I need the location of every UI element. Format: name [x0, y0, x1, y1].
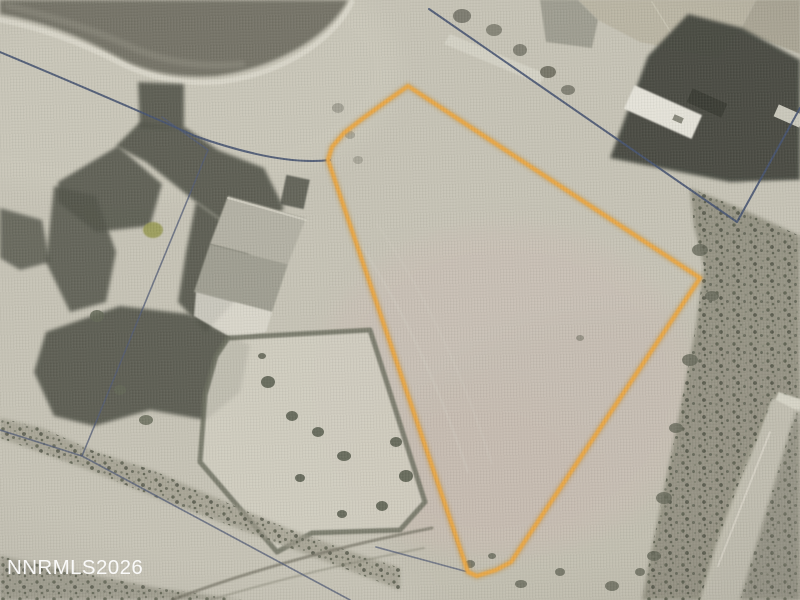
- house-shadow-edge-left: [0, 208, 50, 270]
- yard-bush: [390, 437, 402, 447]
- vehicle-blob: [561, 85, 575, 95]
- gravel-blob: [353, 156, 363, 164]
- scrub-blob: [682, 354, 698, 366]
- bottom-shrub: [605, 581, 619, 591]
- yard-bush: [312, 427, 324, 437]
- vehicle-blob: [513, 44, 527, 56]
- yard-bush: [295, 474, 305, 482]
- yard-bush: [399, 470, 413, 482]
- scrub-blob: [692, 244, 708, 256]
- vehicle-blob: [486, 24, 502, 36]
- aerial-parcel-map-photo: NNRMLS2026: [0, 0, 800, 600]
- gravel-blob: [332, 103, 344, 113]
- scrub-blob: [656, 492, 672, 504]
- vehicle-blob: [540, 66, 556, 78]
- bottom-shrub: [488, 553, 496, 559]
- vehicle-blob: [453, 9, 471, 23]
- shrub: [139, 415, 153, 425]
- lot-speck: [576, 335, 584, 341]
- scrub-blob: [705, 291, 719, 301]
- mls-watermark: NNRMLS2026: [7, 556, 143, 580]
- yard-bush: [337, 510, 347, 518]
- map-canvas: [0, 0, 800, 600]
- yard-bush: [376, 501, 388, 511]
- white-edge-strip: [444, 34, 546, 84]
- olive-bush: [143, 222, 163, 238]
- shrub: [114, 385, 126, 395]
- yard-bush: [337, 451, 351, 461]
- yard-bush: [258, 353, 266, 359]
- scrub-blob: [647, 551, 661, 561]
- yard-bush: [286, 411, 298, 421]
- shed-shadow-right: [280, 175, 310, 209]
- shrub: [90, 310, 104, 322]
- bottom-shrub: [635, 568, 645, 576]
- bottom-shrub: [555, 568, 565, 576]
- bottom-shrub: [515, 580, 527, 588]
- scrub-blob: [669, 423, 683, 433]
- yard-bush: [261, 376, 275, 388]
